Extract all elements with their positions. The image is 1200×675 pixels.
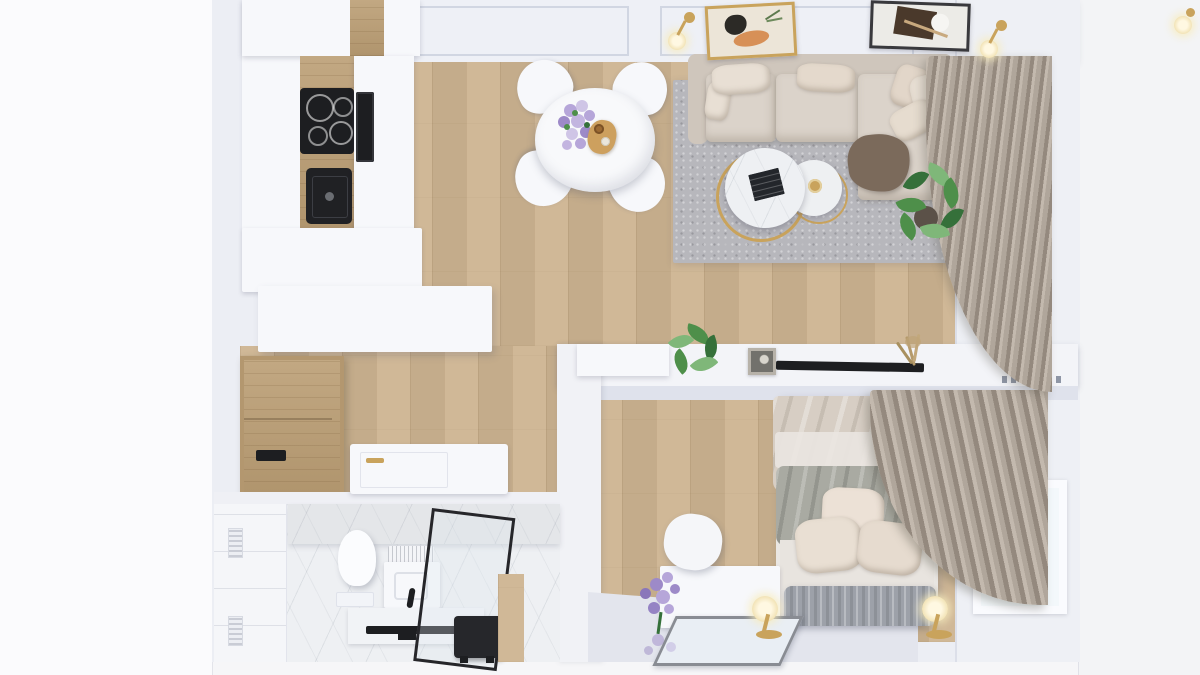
outside-wall-lamp [1174,16,1192,34]
wardrobe-door-seam [244,418,332,420]
monstera-plant [896,166,964,242]
ceiling-lamp-mount [996,20,1007,31]
bottle [594,124,604,134]
bathroom-back-wall [288,504,560,544]
burner-ring [306,94,334,122]
table-lamp-base [756,630,782,639]
bathroom-doorway-floor [498,574,524,662]
burner-ring [333,97,353,117]
towel-rail-bracket [398,632,416,640]
stool-leg [460,656,468,663]
apartment-render [0,0,1200,675]
ceiling-lamp-mount [684,12,695,23]
stool-leg [486,656,494,663]
outside-left-area [0,0,213,675]
toilet-flush-plate [336,592,374,607]
bathroom-tile-wall [214,504,287,662]
lavender-bouquet [636,572,706,664]
wall-art-gold [705,2,798,61]
wall-vent [228,528,243,558]
wardrobe-handle [256,450,286,461]
bed-bench [784,586,936,626]
wall-vent [228,616,243,646]
built-in-oven [356,92,374,162]
sofa-pillow [796,63,855,94]
laundry-stool [454,616,502,658]
sofa-pillow [711,62,771,96]
trinket-dish [808,179,822,193]
kitchen-peninsula [258,286,492,352]
kitchen-peninsula [242,228,422,292]
wall-art-dark [869,0,971,51]
table-lamp-base [926,630,952,639]
door-handle [366,458,384,463]
sofa-armrest [688,54,708,144]
photo-frame-image [751,351,773,372]
burner-ring [308,126,328,146]
dried-grass-decor [893,334,931,370]
burner-ring [329,121,353,145]
drinking-glass [601,137,610,146]
kitchen-top-cabinet [242,0,420,56]
kitchen-wood-shelf [350,0,384,56]
toilet [338,530,376,586]
console-planter-box [577,344,669,376]
wardrobe [240,356,344,498]
outside-wall-lamp-mount [1186,8,1195,17]
sink-drain [325,192,334,201]
outside-right-area [1078,0,1200,675]
bed-pillow [793,515,864,576]
calathea-plant [666,326,726,380]
